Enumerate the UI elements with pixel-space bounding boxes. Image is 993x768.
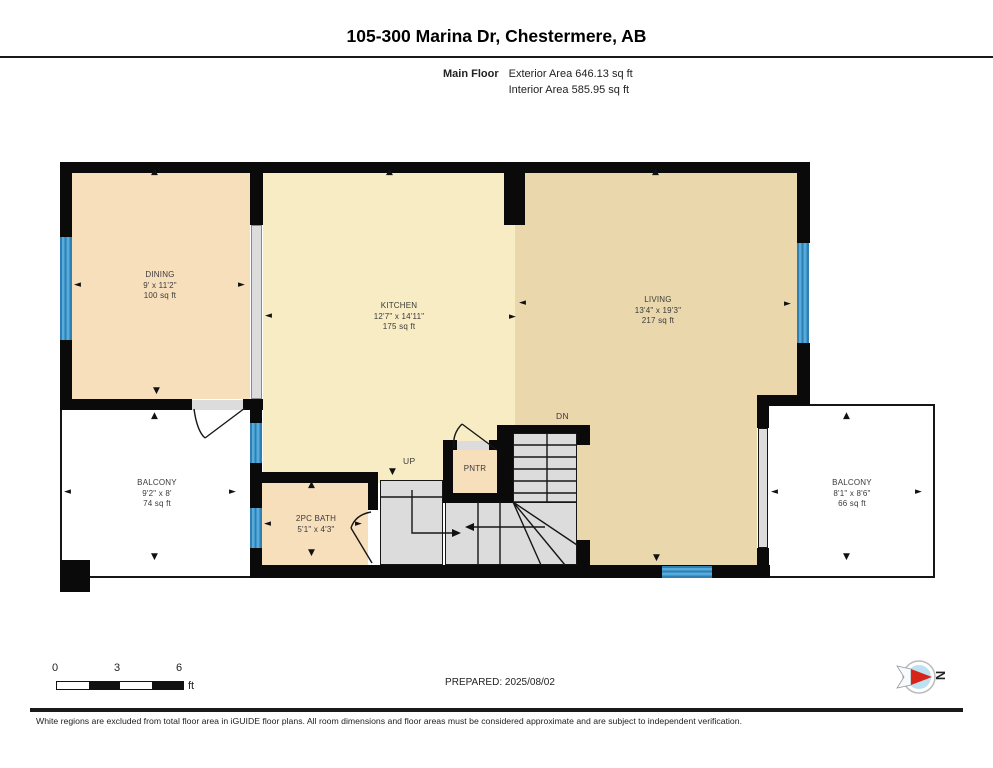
bath-label: 2PC BATH5'1" x 4'3" [296,514,336,535]
dim-arrow-living-top: ▲ [652,168,659,177]
dim-arrow-balcony-right-top: ▲ [843,412,850,421]
dim-arrow-balcony-left-bottom: ▼ [151,553,158,562]
floorplan-page: 105-300 Marina Dr, Chestermere, AB Main … [0,0,993,768]
door-pantry-leaf [462,424,497,450]
scale-tick-3: 3 [114,662,120,674]
dim-arrow-kitchen-left: ◄ [265,312,272,321]
dim-arrow-dining-left: ◄ [74,281,81,290]
dim-arrow-balcony-right-left: ◄ [771,488,778,497]
door-dining-balcony-leaf [205,408,245,438]
stairs-down-label: DN [556,411,569,421]
dim-arrow-dining-bottom: ▼ [153,387,160,396]
stairs-down-arrowhead [465,523,474,531]
compass-tail [897,666,911,688]
balcony-left-label: BALCONY9'2" x 8'74 sq ft [137,478,177,510]
scale-unit: ft [188,680,194,692]
kitchen-label: KITCHEN12'7" x 14'11"175 sq ft [374,301,425,333]
scale-tick-0: 0 [52,662,58,674]
door-pantry-arc [454,424,462,448]
dim-arrow-dining-right: ► [238,281,245,290]
dim-arrow-balcony-left-top: ▲ [151,412,158,421]
pantry-label: PNTR [464,464,487,475]
dim-arrow-kitchen-right: ► [509,313,516,322]
stairs-down-treads [513,433,577,502]
balcony-right-label: BALCONY8'1" x 8'6"66 sq ft [832,478,872,510]
door-bath-leaf [351,528,372,563]
dim-arrow-balcony-left-right: ► [229,488,236,497]
dim-arrow-kitchen-top: ▲ [386,168,393,177]
door-dining-balcony-arc [194,409,205,438]
dim-arrow-bath-left: ◄ [264,520,271,529]
stairs-up-label: UP [403,456,415,466]
dim-arrow-bath-right: ► [355,520,362,529]
dim-arrow-balcony-right-right: ► [915,488,922,497]
prepared-date: PREPARED: 2025/08/02 [400,677,600,688]
dim-arrow-bath-bottom: ▼ [308,549,315,558]
stairs-up-arrowhead [452,529,461,537]
scale-bar [56,681,184,690]
dim-arrow-kitchen-bottom: ▼ [389,468,396,477]
disclaimer-text: White regions are excluded from total fl… [36,716,966,726]
dim-arrow-dining-top: ▲ [151,168,158,177]
dim-arrow-balcony-left-left: ◄ [64,488,71,497]
compass-icon [897,661,935,693]
dining-label: DINING9' x 11'2"100 sq ft [143,270,177,302]
dim-arrow-balcony-right-bottom: ▼ [843,553,850,562]
living-label: LIVING13'4" x 19'3"217 sq ft [635,295,681,327]
stairs-winder-treads [478,502,577,565]
dim-arrow-bath-top: ▲ [308,481,315,490]
plan-linework [0,0,993,768]
dim-arrow-living-left: ◄ [519,299,526,308]
compass-north-letter: N [933,671,948,680]
dim-arrow-living-bottom: ▼ [653,554,660,563]
scale-tick-6: 6 [176,662,182,674]
dim-arrow-living-right: ► [784,300,791,309]
